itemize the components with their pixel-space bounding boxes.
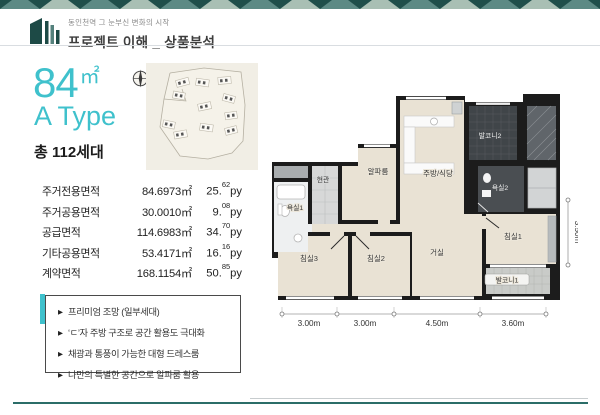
room-label-entrance: 현관: [317, 175, 330, 184]
dim-label-right: 3.50m: [573, 221, 578, 244]
list-item: ▶채광과 통풍이 가능한 대형 드레스룸: [58, 346, 240, 360]
area-row-py: 16.16py: [192, 245, 242, 260]
footer-divider-gray: [250, 398, 588, 399]
bathtub-icon: [277, 185, 305, 199]
list-item: ▶프리미엄 조망 (일부세대): [58, 304, 240, 318]
room-label-bathroom-2: 욕실2: [492, 183, 509, 192]
bullet-icon: ▶: [58, 371, 63, 379]
area-row-sqm: 114.6983㎡: [126, 224, 192, 240]
dim-label-3: 4.50m: [426, 319, 449, 328]
area-table: 주거전용면적 84.6973㎡ 25.62py 주거공용면적 30.0010㎡ …: [42, 183, 242, 286]
area-row-label: 주거전용면적: [42, 183, 126, 199]
dimension-line-right: 3.50m: [566, 198, 578, 267]
area-row-sqm: 53.4171㎡: [126, 245, 192, 261]
area-row-label: 공급면적: [42, 224, 126, 240]
unit-type-name: A Type: [34, 103, 116, 130]
room-label-bathroom-1: 욕실1: [287, 203, 304, 212]
top-decorative-band: [0, 0, 600, 9]
room-label-kitchen-dining: 주방/식당: [423, 168, 453, 178]
dim-label-1: 3.00m: [298, 319, 321, 328]
footer-divider-teal: [13, 402, 588, 405]
table-row: 주거공용면적 30.0010㎡ 9.08py: [42, 204, 242, 225]
room-label-living-room: 거실: [430, 247, 444, 257]
bullet-icon: ▶: [58, 329, 63, 337]
room-label-alpha-room: 알파룸: [368, 167, 389, 176]
area-row-sqm: 30.0010㎡: [126, 204, 192, 220]
room-label-balcony-1: 발코니1: [496, 276, 519, 285]
dim-label-4: 3.60m: [502, 319, 525, 328]
company-logo-icon: [30, 16, 62, 46]
wardrobe: [548, 216, 556, 262]
sink-icon: [482, 190, 491, 197]
list-item: ▶나만의 특별한 공간으로 알파룸 활용: [58, 367, 240, 381]
unit-area-value: 84: [33, 59, 78, 106]
table-row: 기타공용면적 53.4171㎡ 16.16py: [42, 245, 242, 266]
sink-icon: [294, 234, 302, 242]
bedroom-2-floor: [352, 236, 410, 296]
area-row-sqm: 168.1154㎡: [126, 265, 192, 281]
entrance-closet: [274, 166, 308, 178]
page-title: 프로젝트 이해 _ 상품분석: [68, 31, 215, 51]
slide: 동인천역 그 눈부신 변화의 시작 프로젝트 이해 _ 상품분석 84㎡ A T…: [0, 0, 600, 415]
area-row-py: 34.70py: [192, 224, 242, 239]
dimension-line-bottom: 3.00m 3.00m 4.50m 3.60m: [280, 307, 548, 328]
kitchen-sink-icon: [431, 118, 438, 125]
area-row-label: 주거공용면적: [42, 204, 126, 220]
table-row: 주거전용면적 84.6973㎡ 25.62py: [42, 183, 242, 204]
area-row-label: 계약면적: [42, 265, 126, 281]
refrigerator-icon: [452, 102, 462, 114]
dim-label-2: 3.00m: [354, 319, 377, 328]
room-label-bedroom-3: 침실3: [300, 253, 318, 263]
list-item: ▶‘ㄷ’자 주방 구조로 공간 활용도 극대화: [58, 325, 240, 339]
alpha-room-floor: [342, 148, 396, 220]
unit-households: 총 112세대: [34, 141, 104, 162]
room-label-bedroom-1: 침실1: [504, 231, 522, 241]
site-map: [146, 63, 258, 170]
room-label-bedroom-2: 침실2: [367, 253, 385, 263]
area-row-sqm: 84.6973㎡: [126, 183, 192, 199]
table-row: 공급면적 114.6983㎡ 34.70py: [42, 224, 242, 245]
table-row: 계약면적 168.1154㎡ 50.85py: [42, 265, 242, 286]
unit-area-headline: 84㎡: [33, 62, 100, 104]
room-label-balcony-2: 발코니2: [479, 131, 502, 140]
unit-area-unit: ㎡: [80, 66, 100, 88]
features-box: ▶프리미엄 조망 (일부세대) ▶‘ㄷ’자 주방 구조로 공간 활용도 극대화 …: [45, 295, 241, 373]
area-row-label: 기타공용면적: [42, 245, 126, 261]
floor-plan: 현관 욕실1 침실3 침실2 알파룸 주방/식당 발코니2 욕실2 거실 침실1…: [266, 78, 578, 330]
bullet-icon: ▶: [58, 308, 63, 316]
area-row-py: 25.62py: [192, 183, 242, 198]
area-row-py: 9.08py: [192, 204, 242, 219]
header-divider: [0, 45, 600, 46]
toilet-icon: [483, 173, 491, 183]
header-tagline: 동인천역 그 눈부신 변화의 시작: [68, 17, 215, 28]
area-row-py: 50.85py: [192, 265, 242, 280]
bullet-icon: ▶: [58, 350, 63, 358]
